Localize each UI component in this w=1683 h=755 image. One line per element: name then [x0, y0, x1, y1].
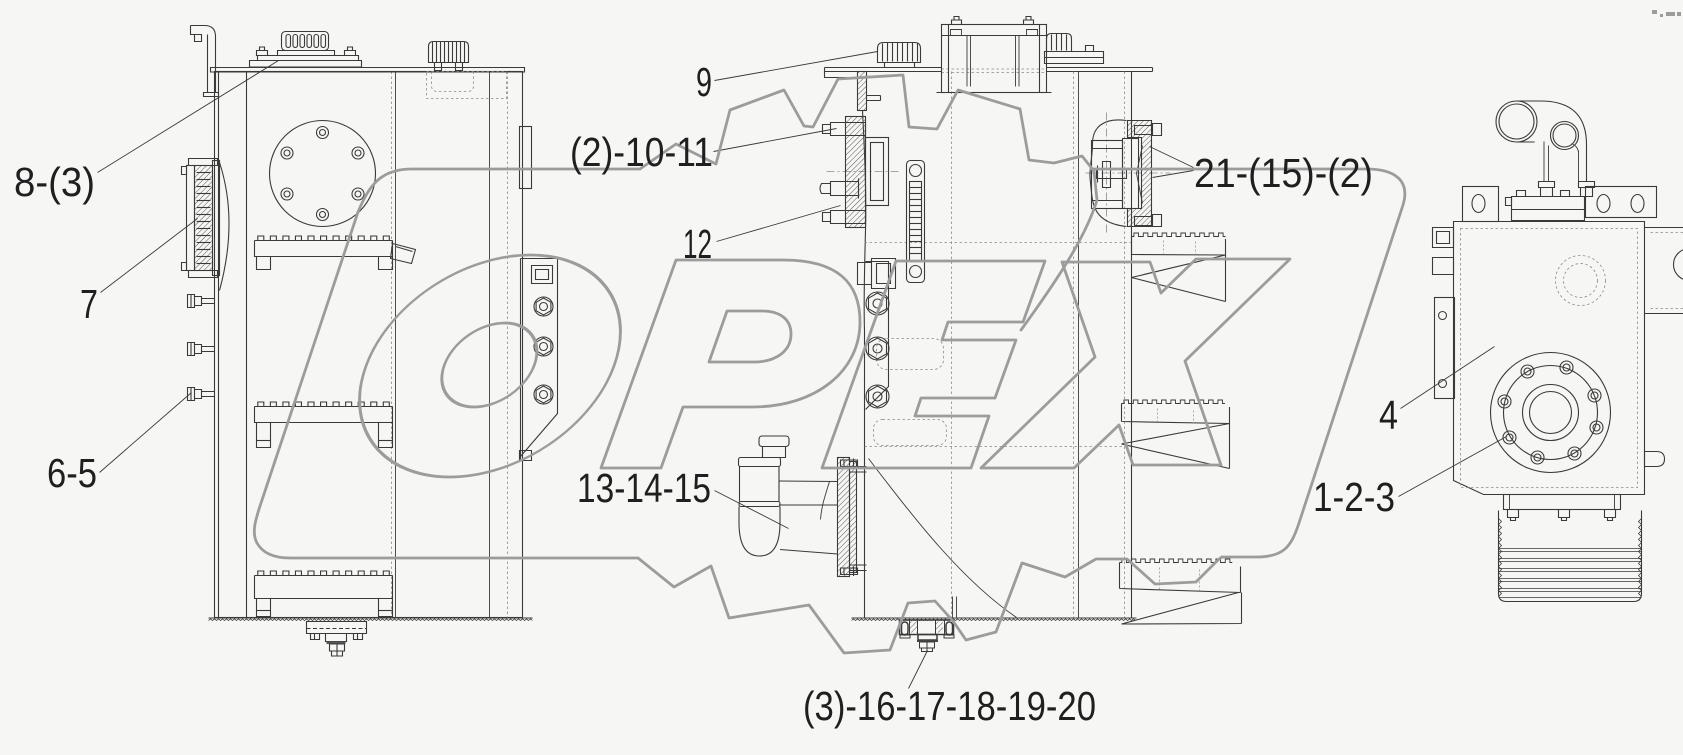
svg-text:6-5: 6-5	[47, 450, 97, 496]
svg-text:12: 12	[683, 221, 712, 267]
svg-text:8-(3): 8-(3)	[14, 159, 95, 205]
svg-text:1-2-3: 1-2-3	[1313, 474, 1395, 520]
svg-text:13-14-15: 13-14-15	[577, 465, 711, 511]
svg-text:9: 9	[696, 59, 712, 105]
svg-text:(2)-10-11: (2)-10-11	[570, 129, 713, 175]
svg-text:(3)-16-17-18-19-20: (3)-16-17-18-19-20	[803, 683, 1096, 729]
svg-text:7: 7	[80, 281, 98, 327]
svg-text:4: 4	[1379, 392, 1398, 438]
svg-text:21-(15)-(2): 21-(15)-(2)	[1194, 150, 1373, 196]
